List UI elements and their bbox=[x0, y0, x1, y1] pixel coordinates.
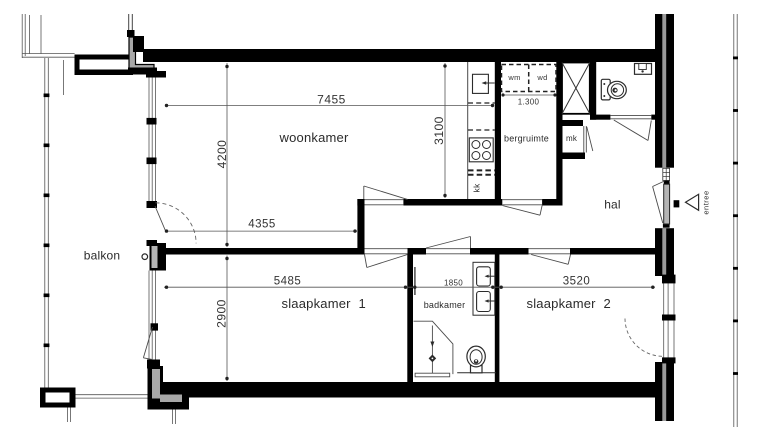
svg-text:balkon: balkon bbox=[84, 249, 121, 263]
svg-text:wm: wm bbox=[507, 73, 520, 82]
svg-text:4200: 4200 bbox=[215, 140, 229, 169]
svg-text:mk: mk bbox=[566, 134, 578, 143]
svg-text:badkamer: badkamer bbox=[424, 300, 466, 310]
svg-text:bergruimte: bergruimte bbox=[504, 134, 549, 144]
svg-text:hal: hal bbox=[604, 197, 621, 211]
svg-text:kk: kk bbox=[472, 183, 482, 192]
svg-text:1850: 1850 bbox=[444, 279, 463, 288]
svg-text:woonkamer: woonkamer bbox=[279, 130, 349, 145]
svg-text:5485: 5485 bbox=[274, 276, 302, 288]
svg-text:1.300: 1.300 bbox=[518, 98, 540, 107]
svg-text:4355: 4355 bbox=[248, 219, 276, 231]
svg-text:3520: 3520 bbox=[563, 276, 591, 288]
svg-text:entree: entree bbox=[702, 190, 711, 214]
svg-text:7455: 7455 bbox=[317, 93, 346, 107]
svg-text:wd: wd bbox=[536, 73, 547, 82]
svg-text:2900: 2900 bbox=[215, 299, 229, 328]
svg-text:3100: 3100 bbox=[432, 116, 446, 145]
